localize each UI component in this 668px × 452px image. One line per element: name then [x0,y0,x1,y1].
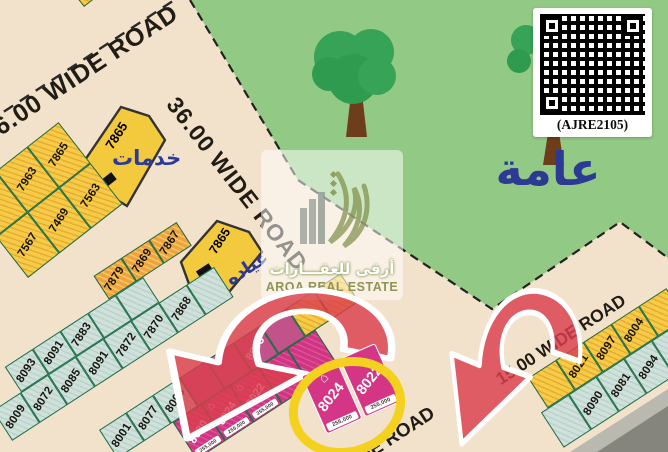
plot-number: 8095 [244,335,268,363]
watermark: أرقى للعقـــارات ARQA REAL ESTATE [261,150,403,300]
plot-number: 8090 [582,389,606,418]
house-icon: ⌂ [234,382,247,394]
plot-number: 8072 [32,384,56,413]
plot-number: 8004 [622,316,646,345]
plot-number: 8081 [609,371,633,400]
plot-number: 7883 [70,320,94,349]
qr-panel: (AJRE2105) [533,8,652,137]
plot-number: 7563 [79,182,103,211]
plot-number: 8077 [136,404,160,433]
qr-caption: (AJRE2105) [557,117,628,133]
plot-number: 8085 [59,366,83,395]
plot-number: 8091 [87,349,111,378]
plot-number: 8008 [163,386,187,415]
watermark-english: ARQA REAL ESTATE [266,280,399,294]
watermark-logo-icon [272,168,392,260]
plot-number: 8009 [4,402,28,431]
plot-number: 7963 [15,165,39,194]
plot-number: 7872 [115,331,139,360]
plot-number: 7869 [130,246,154,275]
plot-number: 7865 [47,141,71,170]
plot-number: 8091 [42,338,66,367]
plot-number: 7870 [142,313,166,342]
watermark-arabic: أرقى للعقـــارات [270,260,395,278]
house-icon: ⌂ [177,419,190,431]
plot-number: 8093 [15,356,39,385]
house-icon: ⌂ [205,401,218,413]
plot-number: 7868 [170,295,194,324]
services-label: خدمات [112,146,181,170]
plot-number: 8094 [637,353,661,382]
qr-code [540,14,645,115]
plot-number: 8097 [595,334,619,363]
qr-finder-icon [623,16,643,36]
qr-finder-icon [542,93,562,113]
plot-number: 7567 [16,231,40,260]
qr-finder-icon [542,16,562,36]
plot-number: 7469 [47,206,71,235]
plot-number: 8001 [109,421,133,450]
plot-number: 8021 [567,352,591,381]
plot-number: 7867 [158,228,182,257]
park-label: عامة [488,142,608,196]
plot-map: 7963 7865 7567 7469 7563 7879 7869 7867 … [0,0,668,452]
